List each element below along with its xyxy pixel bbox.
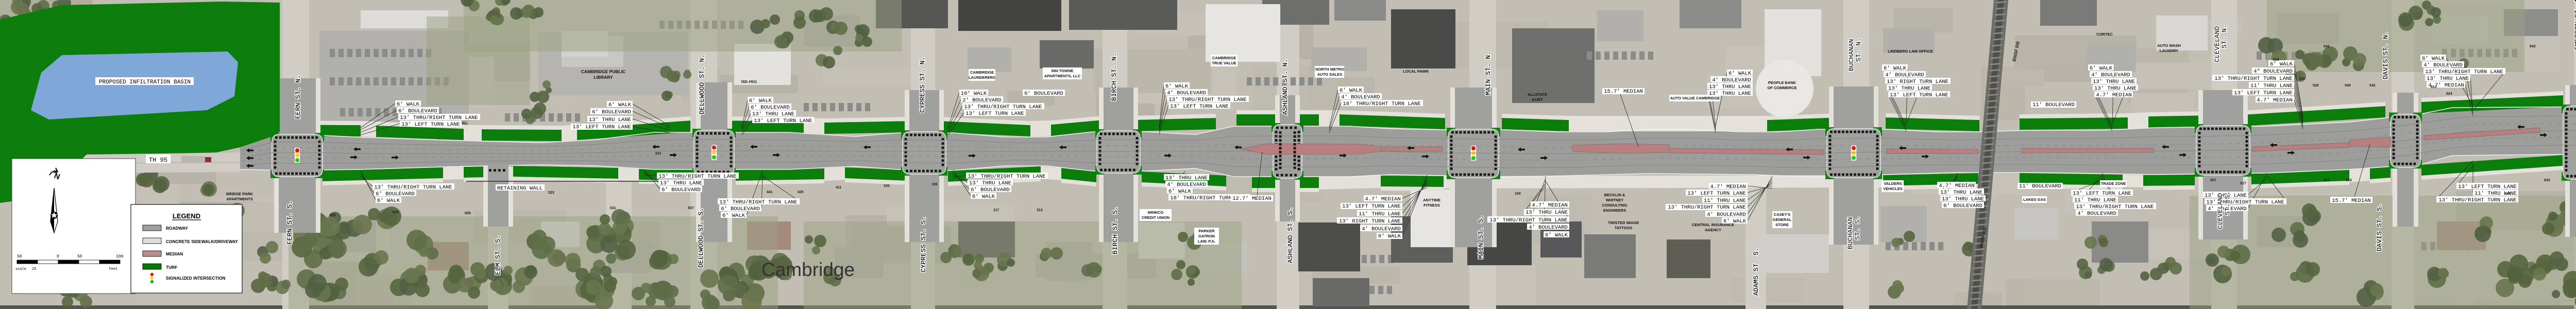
svg-text:13' LEFT TURN LANE: 13' LEFT TURN LANE — [965, 111, 1024, 117]
svg-text:LAW, P.A.: LAW, P.A. — [1198, 239, 1215, 244]
svg-text:ASHLAND ST. N.: ASHLAND ST. N. — [1281, 59, 1289, 115]
svg-text:6' BOULEVARD: 6' BOULEVARD — [1943, 203, 1982, 209]
svg-text:4' BOULEVARD: 4' BOULEVARD — [1341, 94, 1380, 100]
svg-text:313: 313 — [1037, 209, 1043, 212]
svg-text:528: 528 — [2313, 84, 2319, 88]
svg-text:VALDERS: VALDERS — [1884, 181, 1902, 186]
svg-text:13' LEFT TURN LANE: 13' LEFT TURN LANE — [2073, 191, 2131, 197]
svg-text:100: 100 — [116, 254, 124, 259]
svg-text:DAVIS ST. S.: DAVIS ST. S. — [2376, 203, 2383, 251]
svg-text:CYPRESS ST. S.: CYPRESS ST. S. — [920, 216, 927, 272]
svg-text:6' WALK: 6' WALK — [2270, 61, 2293, 67]
svg-text:540: 540 — [2345, 84, 2351, 88]
svg-text:523: 523 — [548, 191, 554, 195]
svg-text:BECKLIN &: BECKLIN & — [1604, 193, 1625, 197]
svg-text:510: 510 — [2273, 58, 2279, 62]
svg-text:4' BOULEVARD: 4' BOULEVARD — [1362, 226, 1401, 232]
svg-text:CORTEC: CORTEC — [2096, 32, 2113, 37]
svg-text:INN TOWNE: INN TOWNE — [1052, 68, 1074, 73]
svg-text:13' LEFT TURN LANE: 13' LEFT TURN LANE — [754, 118, 812, 124]
svg-text:ANYTIME: ANYTIME — [1423, 198, 1440, 202]
svg-text:50: 50 — [77, 254, 82, 259]
svg-text:543: 543 — [2346, 179, 2352, 182]
svg-text:BUCHANAN: BUCHANAN — [1846, 217, 1854, 249]
svg-text:2' BOULEVARD: 2' BOULEVARD — [962, 97, 1002, 104]
svg-text:6' BOULEVARD: 6' BOULEVARD — [1024, 91, 1063, 97]
svg-text:13' LEFT TURN LANE: 13' LEFT TURN LANE — [1890, 92, 1948, 98]
svg-text:MAIN ST. S.: MAIN ST. S. — [1477, 215, 1485, 259]
svg-text:Cambridge: Cambridge — [761, 259, 855, 280]
svg-text:CAMBRIDGE: CAMBRIDGE — [970, 70, 994, 75]
svg-text:CLEVELAND: CLEVELAND — [2216, 193, 2224, 229]
svg-text:13' LEFT TURN LANE: 13' LEFT TURN LANE — [2458, 184, 2516, 190]
svg-text:6' BOULEVARD: 6' BOULEVARD — [592, 109, 631, 115]
svg-text:11' THRU LANE: 11' THRU LANE — [2074, 197, 2116, 203]
svg-text:LAKES GAS: LAKES GAS — [2023, 197, 2046, 202]
svg-text:AUTO WASH: AUTO WASH — [2157, 43, 2181, 48]
svg-text:scale: scale — [15, 267, 26, 271]
svg-text:6' WALK: 6' WALK — [1340, 88, 1363, 94]
svg-text:BIRCH ST. N.: BIRCH ST. N. — [1110, 53, 1118, 101]
svg-text:15.7' MEDIAN: 15.7' MEDIAN — [2332, 198, 2371, 204]
svg-text:13' THRU/RIGHT TURN LANE: 13' THRU/RIGHT TURN LANE — [1489, 217, 1567, 224]
svg-text:18' THRU/RIGHT TURN LANE: 18' THRU/RIGHT TURN LANE — [1343, 101, 1420, 107]
svg-text:ELM ST. S.: ELM ST. S. — [494, 235, 502, 275]
svg-text:EMERSON ST. N.: EMERSON ST. N. — [2573, 0, 2576, 50]
svg-text:13' THRU/RIGHT TURN LANE: 13' THRU/RIGHT TURN LANE — [1168, 97, 1246, 103]
svg-text:507: 507 — [2210, 179, 2216, 182]
svg-text:13' THRU LANE: 13' THRU LANE — [1888, 85, 1930, 92]
svg-text:11' BOULEVARD: 11' BOULEVARD — [2019, 183, 2061, 190]
svg-text:ALLSTATE: ALLSTATE — [1528, 92, 1547, 97]
svg-text:13' THRU LANE: 13' THRU LANE — [1942, 196, 1984, 202]
svg-text:6' WALK: 6' WALK — [608, 102, 632, 108]
svg-text:PROPOSED INFILTRATION BASIN: PROPOSED INFILTRATION BASIN — [99, 79, 191, 85]
svg-text:4.7' MEDIAN: 4.7' MEDIAN — [1939, 183, 1974, 189]
svg-text:TWISTED IMAGE: TWISTED IMAGE — [1608, 220, 1639, 225]
svg-text:SIGNALIZED INTERSECTION: SIGNALIZED INTERSECTION — [166, 276, 225, 281]
svg-text:629: 629 — [393, 211, 399, 214]
svg-text:AUTO SALES: AUTO SALES — [1317, 72, 1342, 77]
svg-text:6' WALK: 6' WALK — [749, 98, 772, 104]
svg-text:TRADE ZONE: TRADE ZONE — [2101, 181, 2126, 186]
svg-text:13' THRU LANE: 13' THRU LANE — [752, 111, 794, 117]
svg-text:4' BOULEVARD: 4' BOULEVARD — [1529, 225, 1568, 231]
svg-text:4.7' MEDIAN: 4.7' MEDIAN — [1532, 202, 1567, 209]
svg-text:CAMBRIDGE: CAMBRIDGE — [1212, 56, 1236, 60]
svg-text:TH 95: TH 95 — [149, 157, 167, 164]
svg-text:6' WALK: 6' WALK — [1728, 71, 1752, 77]
svg-text:6' WALK: 6' WALK — [377, 198, 400, 204]
svg-text:6' BOULEVARD: 6' BOULEVARD — [662, 187, 701, 193]
svg-text:13' THRU/RIGHT TURN LANE: 13' THRU/RIGHT TURN LANE — [1668, 204, 1745, 211]
svg-text:LINDBERG LAW OFFICE: LINDBERG LAW OFFICE — [1888, 49, 1933, 54]
svg-text:ASHLAND ST. S.: ASHLAND ST. S. — [1286, 207, 1294, 263]
svg-text:531: 531 — [655, 152, 662, 156]
svg-text:6' WALK: 6' WALK — [1378, 233, 1401, 239]
svg-text:425: 425 — [798, 191, 804, 194]
svg-text:ENGINEERS: ENGINEERS — [1603, 208, 1626, 213]
svg-text:CONSULTING: CONSULTING — [1602, 203, 1627, 208]
svg-text:LAUNDRY: LAUNDRY — [2160, 48, 2178, 53]
svg-text:MEDIAN: MEDIAN — [166, 251, 183, 256]
svg-text:13' THRU LANE: 13' THRU LANE — [2427, 76, 2469, 82]
svg-text:BIRCH ST. S.: BIRCH ST. S. — [1111, 206, 1119, 254]
svg-text:4' BOULEVARD: 4' BOULEVARD — [1712, 77, 1751, 83]
svg-text:4' BOULEVARD: 4' BOULEVARD — [1885, 72, 1924, 78]
svg-text:13' THRU LANE: 13' THRU LANE — [2094, 85, 2137, 92]
svg-text:520: 520 — [2299, 77, 2305, 81]
svg-text:13' THRU LANE: 13' THRU LANE — [2093, 79, 2135, 85]
svg-text:RETAINING WALL: RETAINING WALL — [497, 185, 543, 192]
svg-text:11' BOULEVARD: 11' BOULEVARD — [2032, 102, 2075, 108]
svg-text:13' LEFT TURN LANE: 13' LEFT TURN LANE — [1342, 203, 1400, 210]
svg-text:ST. S.: ST. S. — [1854, 216, 1861, 240]
svg-text:APARTMENTS, LLC: APARTMENTS, LLC — [1044, 74, 1081, 78]
svg-text:117: 117 — [993, 209, 999, 212]
svg-text:6' WALK: 6' WALK — [1884, 65, 1907, 72]
svg-text:642: 642 — [2324, 45, 2330, 48]
svg-text:50: 50 — [17, 254, 22, 259]
svg-text:13' THRU/RIGHT TURN LANE: 13' THRU/RIGHT TURN LANE — [2425, 69, 2503, 75]
svg-text:OF COMMERCE: OF COMMERCE — [1767, 85, 1797, 90]
svg-text:STORE: STORE — [1775, 222, 1789, 227]
svg-text:6' WALK: 6' WALK — [2422, 56, 2445, 62]
svg-text:11' THRU LANE: 11' THRU LANE — [1359, 211, 1401, 217]
svg-text:11' THRU LANE: 11' THRU LANE — [1704, 198, 1746, 204]
svg-text:13' RIGHT TURN LANE: 13' RIGHT TURN LANE — [1887, 79, 1948, 85]
svg-text:13' THRU/RIGHT TURN LANE: 13' THRU/RIGHT TURN LANE — [2438, 197, 2516, 203]
svg-text:4.7' MEDIAN: 4.7' MEDIAN — [2257, 97, 2292, 104]
svg-text:13' THRU LANE: 13' THRU LANE — [1526, 210, 1568, 216]
svg-text:507: 507 — [688, 207, 694, 210]
svg-text:13' THRU/RIGHT TURN LANE: 13' THRU/RIGHT TURN LANE — [374, 184, 452, 191]
svg-text:CYPRESS ST. N.: CYPRESS ST. N. — [919, 57, 926, 113]
svg-text:643: 643 — [2544, 179, 2550, 182]
svg-text:13' THRU/RIGHT TURN LANE: 13' THRU/RIGHT TURN LANE — [400, 115, 478, 121]
svg-text:13' THRU LANE: 13' THRU LANE — [969, 180, 1011, 186]
svg-text:4' BOULEVARD: 4' BOULEVARD — [2424, 62, 2463, 68]
svg-text:411: 411 — [836, 186, 841, 190]
svg-text:517: 517 — [2240, 182, 2246, 185]
svg-text:6' BOULEVARD: 6' BOULEVARD — [751, 105, 790, 111]
svg-text:LAUNDERERS: LAUNDERERS — [969, 75, 995, 80]
svg-text:13' THRU LANE: 13' THRU LANE — [1165, 175, 1208, 181]
svg-text:25: 25 — [32, 267, 36, 271]
svg-text:4' BOULEVARD: 4' BOULEVARD — [2077, 211, 2116, 217]
svg-text:LEGEND: LEGEND — [173, 212, 200, 220]
svg-text:13' THRU LANE: 13' THRU LANE — [1709, 84, 1751, 90]
svg-text:WHITNEY: WHITNEY — [1606, 198, 1624, 202]
svg-text:612: 612 — [2431, 85, 2437, 89]
svg-text:6' WALK: 6' WALK — [972, 194, 995, 200]
svg-text:4.7' MEDIAN: 4.7' MEDIAN — [2096, 92, 2131, 98]
svg-text:13' THRU LANE: 13' THRU LANE — [1940, 190, 1982, 196]
svg-text:ST. S.: ST. S. — [2224, 191, 2231, 215]
svg-text:GENERAL: GENERAL — [1773, 217, 1792, 222]
svg-text:PEOPLE BANK: PEOPLE BANK — [1768, 80, 1797, 85]
svg-text:13' THRU LANE: 13' THRU LANE — [589, 117, 631, 123]
svg-text:LIBRARY: LIBRARY — [594, 75, 613, 80]
svg-text:NORTH METRO: NORTH METRO — [1315, 67, 1344, 72]
svg-text:10' WALK: 10' WALK — [961, 91, 987, 97]
svg-text:531: 531 — [610, 207, 616, 210]
svg-text:CAMBRIDGE PUBLIC: CAMBRIDGE PUBLIC — [581, 69, 625, 74]
svg-text:LOCAL PAWN: LOCAL PAWN — [1403, 69, 1429, 74]
svg-text:6' WALK: 6' WALK — [1545, 232, 1568, 238]
svg-text:DELLWOOD ST. N.: DELLWOOD ST. N. — [698, 54, 706, 114]
svg-text:FITNESS: FITNESS — [1423, 203, 1440, 208]
svg-text:0: 0 — [57, 254, 59, 259]
svg-text:441: 441 — [767, 191, 773, 194]
svg-text:FERN ST. N.: FERN ST. N. — [294, 75, 302, 119]
svg-text:13' LEFT TURN LANE: 13' LEFT TURN LANE — [1170, 104, 1228, 110]
svg-text:13' THRU/RIGHT TURN LANE: 13' THRU/RIGHT TURN LANE — [658, 174, 736, 180]
svg-text:TATTOOS: TATTOOS — [1615, 226, 1633, 230]
svg-text:ST. N.: ST. N. — [1855, 38, 1862, 62]
svg-text:12.7' MEDIAN: 12.7' MEDIAN — [1232, 196, 1272, 202]
svg-text:13' LEFT TURN LANE: 13' LEFT TURN LANE — [1687, 191, 1745, 197]
svg-text:13' THRU/RIGHT TURN LANE: 13' THRU/RIGHT TURN LANE — [719, 199, 797, 205]
svg-text:842: 842 — [2530, 45, 2536, 48]
svg-text:VEHICLES: VEHICLES — [1883, 186, 1903, 191]
svg-text:6' BOULEVARD: 6' BOULEVARD — [376, 191, 415, 197]
svg-text:13' LEFT TURN LANE: 13' LEFT TURN LANE — [401, 122, 460, 128]
svg-text:6' BOULEVARD: 6' BOULEVARD — [971, 187, 1010, 193]
svg-text:ADAMS ST. S.: ADAMS ST. S. — [1752, 247, 1760, 296]
svg-text:106: 106 — [931, 183, 938, 186]
svg-text:KURT: KURT — [1532, 97, 1543, 102]
svg-text:13' THRU/RIGHT TURN LANE: 13' THRU/RIGHT TURN LANE — [2214, 76, 2292, 82]
svg-text:13' THRU/RIGHT TURN LANE: 13' THRU/RIGHT TURN LANE — [968, 174, 1045, 180]
svg-text:6' WALK: 6' WALK — [722, 213, 745, 219]
svg-text:4' BOULEVARD: 4' BOULEVARD — [1167, 182, 1206, 188]
svg-text:4" BOULEVARD: 4" BOULEVARD — [2253, 68, 2293, 75]
svg-text:4' BOULEVARD: 4' BOULEVARD — [1707, 212, 1746, 218]
svg-text:TURF: TURF — [166, 265, 177, 270]
svg-text:6' WALK: 6' WALK — [2090, 65, 2113, 72]
svg-text:6' WALK: 6' WALK — [1168, 188, 1192, 195]
svg-text:13' THRU/RIGHT TURN LANE: 13' THRU/RIGHT TURN LANE — [2076, 204, 2154, 210]
svg-text:BRIDGE PARK: BRIDGE PARK — [226, 192, 253, 196]
svg-text:624: 624 — [2446, 92, 2452, 96]
svg-text:DAVIS ST. N.: DAVIS ST. N. — [2382, 31, 2389, 79]
svg-text:542: 542 — [2369, 84, 2376, 88]
svg-text:CONCRETE SIDEWALK/DRIVEWAY: CONCRETE SIDEWALK/DRIVEWAY — [166, 239, 238, 244]
svg-text:CREDIT UNION: CREDIT UNION — [1142, 215, 1170, 220]
svg-text:ST. N.: ST. N. — [2221, 24, 2228, 48]
svg-text:105: 105 — [884, 184, 890, 188]
svg-text:6' WALK: 6' WALK — [1165, 83, 1189, 90]
svg-text:11' THRU LANE: 11' THRU LANE — [2250, 83, 2293, 89]
svg-text:AGENCY: AGENCY — [1705, 228, 1721, 232]
svg-text:FERN ST. S.: FERN ST. S. — [286, 200, 294, 245]
svg-text:100: 100 — [1515, 192, 1521, 196]
svg-text:DELLWOOD ST. S.: DELLWOOD ST. S. — [697, 208, 705, 268]
svg-text:829: 829 — [330, 214, 336, 217]
svg-text:6' BOULEVARD: 6' BOULEVARD — [721, 206, 760, 212]
svg-text:13' LEFT TURN LANE: 13' LEFT TURN LANE — [572, 124, 631, 130]
svg-text:13' RIGHT TURN LANE: 13' RIGHT TURN LANE — [1339, 218, 1401, 225]
svg-text:6' WALK: 6' WALK — [397, 101, 420, 108]
svg-text:4.7' MEDIAN: 4.7' MEDIAN — [1365, 196, 1400, 202]
svg-text:CASEY'S: CASEY'S — [1774, 212, 1791, 217]
svg-text:6' BOULEVARD: 6' BOULEVARD — [398, 108, 437, 114]
svg-text:GATRON: GATRON — [1198, 234, 1215, 238]
svg-text:941: 941 — [2505, 192, 2511, 196]
svg-text:609: 609 — [465, 212, 471, 215]
svg-text:4.7' MEDIAN: 4.7' MEDIAN — [1710, 184, 1745, 190]
svg-text:feet: feet — [109, 267, 117, 271]
svg-text:527: 527 — [2324, 179, 2330, 182]
svg-text:ISD #911: ISD #911 — [741, 79, 757, 84]
svg-text:4' BOULEVARD: 4' BOULEVARD — [2091, 72, 2130, 78]
svg-text:BUCHANAN: BUCHANAN — [1848, 39, 1855, 71]
svg-text:APARTMENTS: APARTMENTS — [226, 197, 253, 201]
svg-text:TRUE VALUE: TRUE VALUE — [1212, 61, 1236, 65]
svg-text:PARKER: PARKER — [1198, 229, 1215, 233]
svg-text:13' LEFT TURN LANE: 13' LEFT TURN LANE — [2234, 90, 2292, 96]
svg-text:4' BOULEVARD: 4' BOULEVARD — [1167, 90, 1206, 96]
svg-text:13' THRU/RIGHT TURN LANE: 13' THRU/RIGHT TURN LANE — [964, 104, 1042, 110]
svg-text:AUTO VALUE CAMBRIDGE: AUTO VALUE CAMBRIDGE — [1670, 96, 1720, 100]
svg-text:CENTRAL INSURANCE: CENTRAL INSURANCE — [1692, 222, 1734, 227]
svg-text:MAIN ST. N.: MAIN ST. N. — [1484, 51, 1492, 95]
svg-text:ROADWAY: ROADWAY — [166, 226, 188, 231]
svg-text:CLEVELAND: CLEVELAND — [2213, 26, 2221, 62]
svg-text:15.7' MEDIAN: 15.7' MEDIAN — [1604, 89, 1643, 95]
svg-text:13' THRU LANE: 13' THRU LANE — [660, 180, 702, 186]
svg-text:MINNCO: MINNCO — [1148, 210, 1164, 215]
